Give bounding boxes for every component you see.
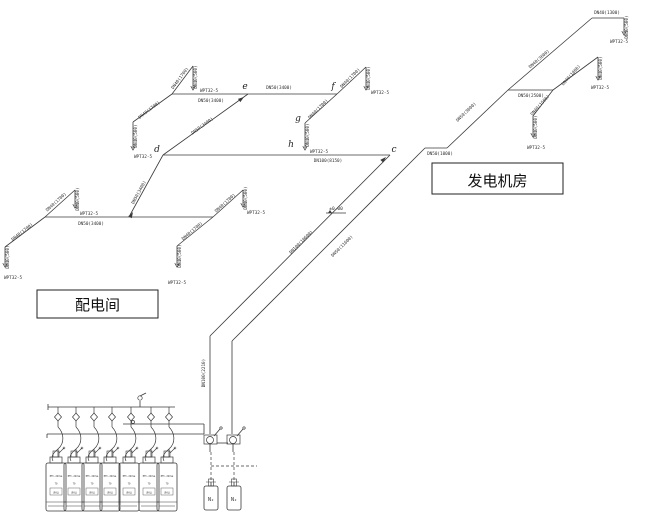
pigtail-hose [70,427,81,461]
pipe-size-label: DN40(500) [5,245,11,268]
check-valve-icon [55,413,62,421]
node-letter-e: e [242,82,247,92]
cylinder-agent-text: HFC-227ea [161,475,174,478]
pipe-size-label: DN40(500) [75,187,81,210]
elevation-label: ±0.00 [329,206,343,212]
pigtail-hose [52,427,63,461]
pigtail-hose [125,427,136,461]
cylinder-agent-text: HFC-227ea [104,475,117,478]
agent-cylinder [46,463,66,511]
pipe-size-label: DN40(500) [366,66,372,89]
cylinder-size-text: 70 [91,483,94,486]
pipe-size-label: DN40(1700) [170,66,190,90]
cylinder-size-text: 70 [109,483,112,486]
valve-actuator-icon [230,437,237,444]
pipe-size-label: DN40(500) [243,186,249,209]
pipe-size-label: DN50(3000) [455,101,478,123]
pipe-size-label: DN50(1000) [427,151,453,157]
pipe-size-label: DN50(2500) [518,93,544,99]
piping-isometric-diagram: HFC-227ea70(90L)HFC-227ea70(90L)HFC-227e… [0,0,650,514]
cylinder-agent-text: HFC-227ea [123,475,136,478]
pipe-line [45,190,75,217]
pipe-size-label: DN40(1700) [137,100,161,121]
check-valve-icon [128,413,135,421]
pipe-size-label: DN40(500) [133,124,139,147]
pipe-size-label: DN40(1700) [10,222,34,243]
pipe-size-label: DN40(1700) [181,221,205,242]
cylinder-tag-text: (90L) [164,492,171,495]
agent-cylinder [119,463,139,511]
node-letter-c: c [391,145,396,155]
check-valve-icon [109,413,116,421]
agent-cylinder [157,463,177,511]
check-valve-icon [73,413,80,421]
agent-cylinder [139,463,159,511]
cylinder-size-text: 70 [73,483,76,486]
pipe-size-label: DN50(3400) [130,180,148,206]
pipe-size-label: DN50(3400) [266,85,292,91]
nozzle-model-label: WPT32-5 [168,280,187,286]
node-letter-d: d [154,145,160,155]
pipe-size-label: DN50(3400) [198,98,224,104]
pipe-size-label: DN40(500) [193,65,199,88]
valve-actuator-icon [132,421,135,424]
pilot-cylinder-label: N₂ [208,497,214,503]
pipe-size-label: DN40(500) [624,15,630,38]
cylinder-tag-text: (90L) [71,492,78,495]
pipe-size-label: DN100(10600) [288,229,314,255]
nozzle-model-label: WPT32-5 [371,90,390,96]
agent-cylinder [64,463,84,511]
cylinder-agent-text: HFC-227ea [68,475,81,478]
pigtail-hose [106,427,117,461]
nozzle-model-label: WPT32-5 [134,154,153,160]
pipe-size-label: DN50(3400) [78,221,104,227]
check-valve-icon [166,413,173,421]
nozzle-model-label: WPT32-5 [4,275,23,281]
pipe-size-label: DN40(3600) [528,48,551,70]
cylinder-tag-text: (90L) [126,492,133,495]
cylinder-tag-text: (90L) [146,492,153,495]
cylinder-tag-text: (90L) [107,492,114,495]
cylinder-size-text: 70 [166,483,169,486]
pipe-line [508,18,592,90]
nozzle-model-label: WPT32-5 [310,149,329,155]
pipe-size-label: DN40(1700) [45,191,68,213]
room-title-label: 配电间 [75,296,120,314]
room-title-label: 发电机房 [467,172,527,190]
pipe-size-label: DN40(500) [177,244,183,267]
node-letter-h: h [288,140,294,150]
valve-actuator-icon [207,437,214,444]
nozzle-model-label: WPT32-5 [591,85,610,91]
cylinder-tag-text: (90L) [89,492,96,495]
node-letter-g: g [295,114,301,124]
pipe-size-label: DN50(3400) [190,116,214,136]
diagram-canvas: HFC-227ea70(90L)HFC-227ea70(90L)HFC-227e… [0,0,650,514]
nozzle-model-label: WPT32-5 [610,39,629,45]
pipe-size-label: DN40(500) [598,56,604,79]
pipe-line [232,148,425,341]
agent-cylinder [82,463,102,511]
cylinder-size-text: 70 [128,483,131,486]
valve-actuator-icon [243,427,245,429]
check-valve-icon [91,413,98,421]
nozzle-model-label: WPT32-5 [200,88,219,94]
pigtail-hose [145,427,156,461]
pipe-size-label: DN50(11600) [330,234,354,258]
nozzle-model-label: WPT32-5 [247,210,266,216]
node-letter-f: f [330,82,336,92]
valve-actuator-icon [220,427,222,429]
cylinder-agent-text: HFC-227ea [50,475,63,478]
valve-actuator-icon [138,396,142,400]
pipe-size-label: DN40(1800) [560,64,582,87]
pipe-size-label: DN40(500) [305,123,311,146]
pipe-size-label: DN40(1700) [214,192,237,214]
check-valve-icon [148,413,155,421]
agent-cylinder [100,463,120,511]
pipe-size-label: DN40(500) [533,115,539,138]
nozzle-model-label: WPT32-5 [80,211,99,217]
cylinder-agent-text: HFC-227ea [143,475,156,478]
pipe-size-label: DN100(8150) [314,158,342,164]
pilot-cylinder-label: N₂ [231,497,237,503]
cylinder-size-text: 70 [55,483,58,486]
pigtail-hose [163,427,174,461]
pipe-size-label: DN100(2210) [201,359,207,387]
nozzle-model-label: WPT32-5 [527,145,546,151]
pigtail-hose [88,427,99,461]
pipe-size-label: DN40(1700) [307,98,330,121]
pipe-size-label: DN40(1700) [339,67,362,90]
pipe-line [140,393,146,396]
cylinder-agent-text: HFC-227ea [86,475,99,478]
cylinder-tag-text: (90L) [53,492,60,495]
pipe-size-label: DN40(1300) [594,10,620,16]
cylinder-size-text: 70 [148,483,151,486]
